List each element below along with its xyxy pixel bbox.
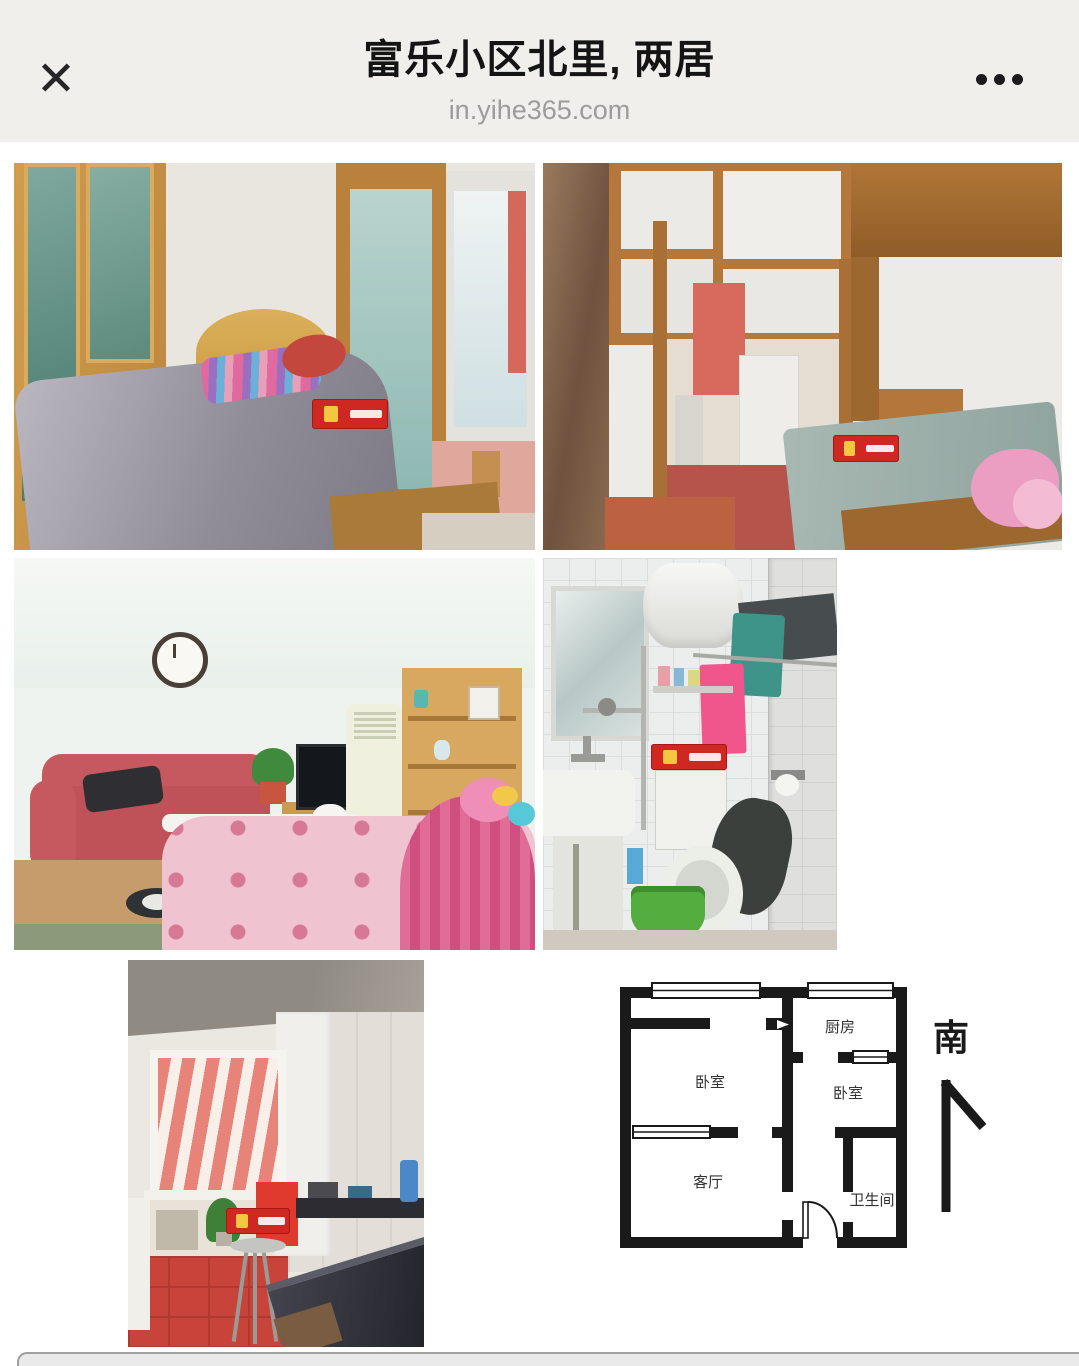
label-bathroom: 卫生间 [849,1192,894,1209]
page-url: in.yihe365.com [0,94,1079,126]
browser-header: ✕ 富乐小区北里, 两居 in.yihe365.com [0,0,1079,142]
floor-plan-windows [633,983,893,1138]
label-bedroom-right: 卧室 [833,1085,863,1102]
pink-towel [699,663,746,754]
watermark-sign [651,744,727,770]
white-chair [128,1198,150,1330]
bottom-bar [17,1352,1079,1366]
page-title: 富乐小区北里, 两居 [0,36,1079,84]
photo-kitchen[interactable] [128,960,424,1347]
watermark-sign [226,1208,290,1234]
more-icon[interactable] [976,74,1023,85]
floor-plan-image[interactable]: 厨房 卧室 卧室 客厅 卫生间 南 [580,960,1079,1345]
photo-bedroom-1[interactable] [14,163,535,550]
entry-door-leaf [803,1202,808,1238]
page: { "header": { "title": "富乐小区北里, 两居", "ur… [0,0,1079,1360]
more-dot [994,74,1005,85]
compass-arrow [944,1080,983,1212]
wall-clock [152,632,208,688]
watermark-sign [833,435,899,462]
plant [252,748,294,786]
mirror [551,586,649,741]
water-heater [643,563,743,648]
wardrobe [543,163,609,550]
label-bedroom-left: 卧室 [695,1074,725,1091]
photo-bathroom[interactable] [543,558,837,950]
compass-south-label: 南 [933,1017,969,1058]
more-dot [1012,74,1023,85]
floor-plan-labels: 厨房 卧室 卧室 客厅 卫生间 [693,1019,895,1209]
watermark-sign [312,399,388,429]
photo-bedroom-2[interactable] [543,163,1062,550]
entry-door-arc [808,1202,837,1238]
photo-living-room[interactable] [14,558,535,950]
sink [543,770,635,836]
overhead-cabinet [851,163,1062,257]
more-dot [976,74,987,85]
label-kitchen: 厨房 [825,1019,855,1036]
label-living-room: 客厅 [693,1174,723,1191]
